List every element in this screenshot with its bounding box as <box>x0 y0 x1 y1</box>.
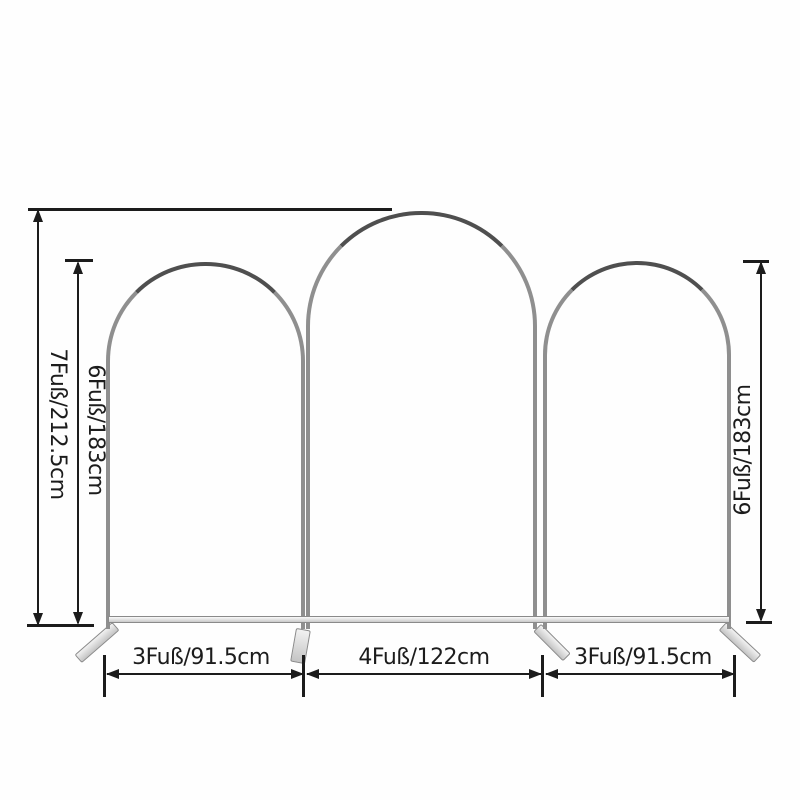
arrowhead-right-icon <box>291 669 304 679</box>
extension-tick-top-total <box>28 208 392 211</box>
dim-line-middle-arch-width <box>307 673 541 675</box>
dim-line-left-arch-height <box>77 263 79 623</box>
arrowhead-right-icon <box>529 669 542 679</box>
dim-label-left-arch-height: 6Fuß/183cm <box>82 364 108 495</box>
left-arch-frame <box>106 262 305 629</box>
arrowhead-up-icon <box>756 261 766 274</box>
dim-line-right-arch-height <box>760 263 762 620</box>
arrowhead-left-icon <box>106 669 119 679</box>
arch-foot-center-right <box>533 624 570 661</box>
arrowhead-down-icon <box>33 613 43 626</box>
middle-arch-frame <box>306 211 537 629</box>
dim-label-right-arch-width: 3Fuß/91.5cm <box>574 645 712 671</box>
arrowhead-left-icon <box>545 669 558 679</box>
arch-backdrop-stand-dimension-diagram: 7Fuß/212.5cm 6Fuß/183cm 6Fuß/183cm 3Fuß/… <box>0 0 800 800</box>
dim-line-left-arch-width <box>107 673 303 675</box>
dim-line-total-height <box>37 211 39 624</box>
dim-label-right-arch-height: 6Fuß/183cm <box>731 384 757 515</box>
arrowhead-up-icon <box>33 209 43 222</box>
base-crossbar <box>108 616 730 623</box>
arrowhead-right-icon <box>722 669 735 679</box>
arrowhead-up-icon <box>73 261 83 274</box>
arch-foot-center-left <box>290 628 311 664</box>
dim-label-middle-arch-width: 4Fuß/122cm <box>358 645 489 671</box>
arrowhead-down-icon <box>73 612 83 625</box>
dim-label-left-arch-width: 3Fuß/91.5cm <box>132 645 270 671</box>
dim-label-total-height: 7Fuß/212.5cm <box>44 348 70 499</box>
arrowhead-down-icon <box>756 609 766 622</box>
right-arch-frame <box>543 261 731 629</box>
dim-line-right-arch-width <box>546 673 734 675</box>
arrowhead-left-icon <box>306 669 319 679</box>
